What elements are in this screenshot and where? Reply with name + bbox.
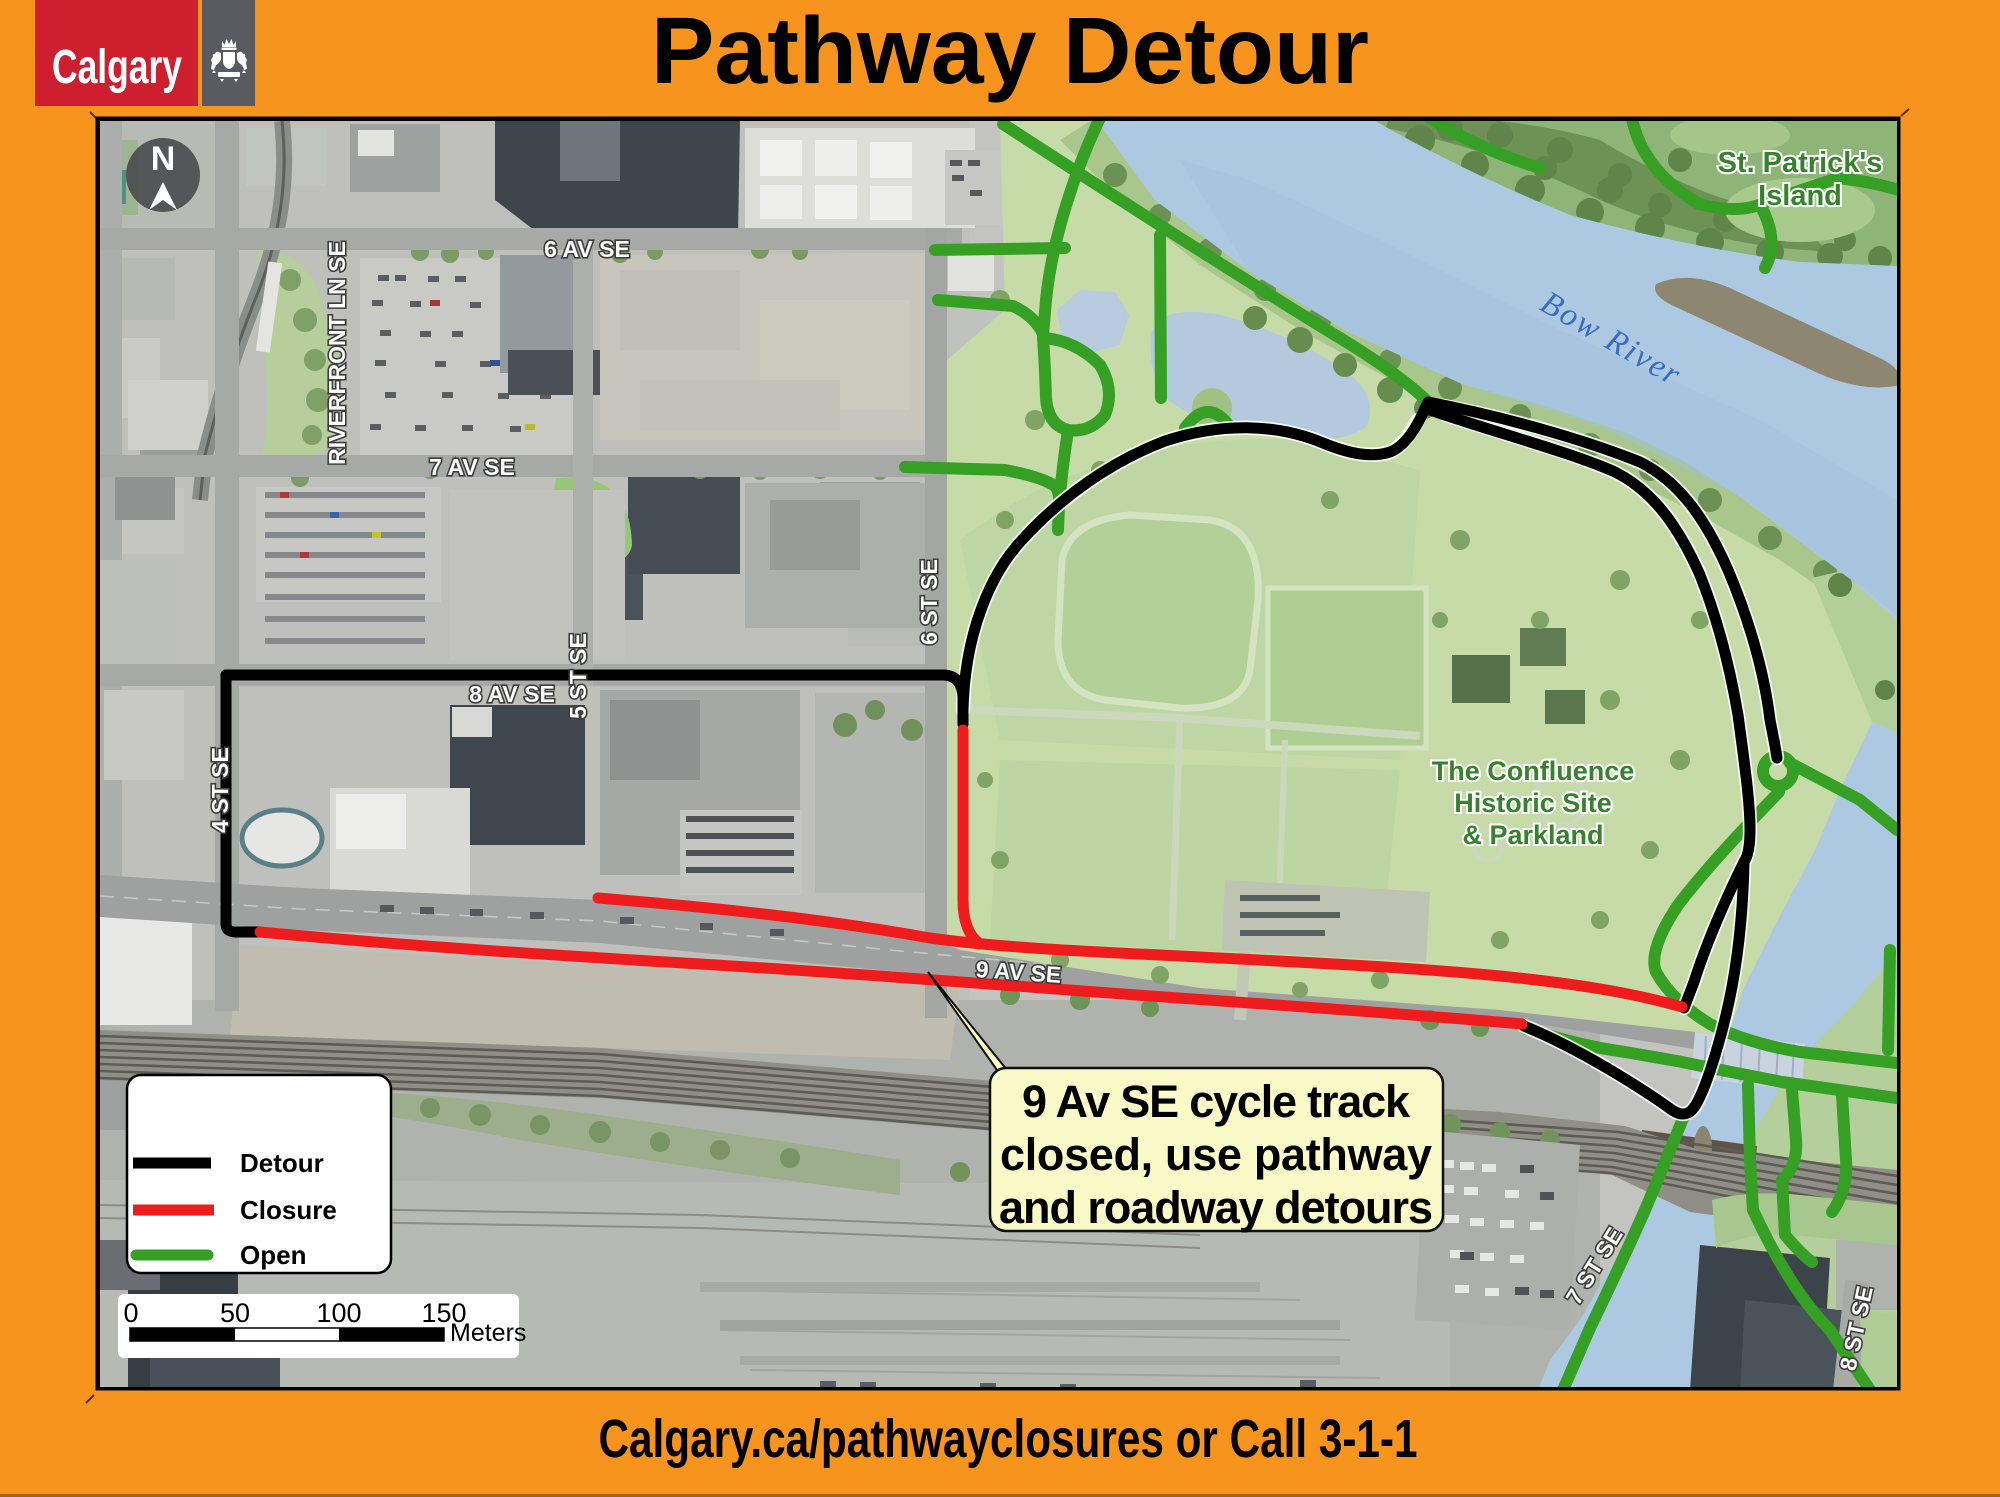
svg-text:6 AV SE: 6 AV SE <box>544 236 630 262</box>
svg-text:8 AV SE: 8 AV SE <box>469 681 555 707</box>
svg-text:Closure: Closure <box>240 1195 337 1225</box>
svg-text:50: 50 <box>220 1298 250 1328</box>
svg-text:RIVERFRONT LN SE: RIVERFRONT LN SE <box>324 241 350 465</box>
svg-text:100: 100 <box>316 1298 361 1328</box>
svg-text:Calgary.ca/pathwayclosures or: Calgary.ca/pathwayclosures or Call 3-1-1 <box>599 1409 1418 1469</box>
svg-text:Historic Site: Historic Site <box>1454 788 1612 818</box>
svg-text:St. Patrick's: St. Patrick's <box>1718 147 1883 179</box>
svg-text:6 ST SE: 6 ST SE <box>916 559 942 645</box>
svg-text:5 ST SE: 5 ST SE <box>565 633 591 719</box>
svg-text:closed, use pathway: closed, use pathway <box>1000 1129 1432 1180</box>
svg-text:Calgary: Calgary <box>52 41 182 94</box>
svg-text:The Confluence: The Confluence <box>1432 756 1635 786</box>
svg-text:4 ST SE: 4 ST SE <box>207 747 233 833</box>
svg-text:Open: Open <box>240 1240 306 1270</box>
svg-text:9 Av SE cycle track: 9 Av SE cycle track <box>1022 1076 1411 1127</box>
svg-text:Pathway Detour: Pathway Detour <box>651 0 1369 104</box>
svg-text:& Parkland: & Parkland <box>1462 820 1603 850</box>
svg-text:and roadway detours: and roadway detours <box>999 1182 1433 1233</box>
svg-text:7 AV SE: 7 AV SE <box>429 454 515 480</box>
svg-text:Island: Island <box>1758 180 1842 212</box>
svg-text:Meters: Meters <box>450 1319 526 1347</box>
svg-text:0: 0 <box>123 1298 138 1328</box>
svg-text:N: N <box>151 140 176 178</box>
svg-text:Detour: Detour <box>240 1148 324 1178</box>
